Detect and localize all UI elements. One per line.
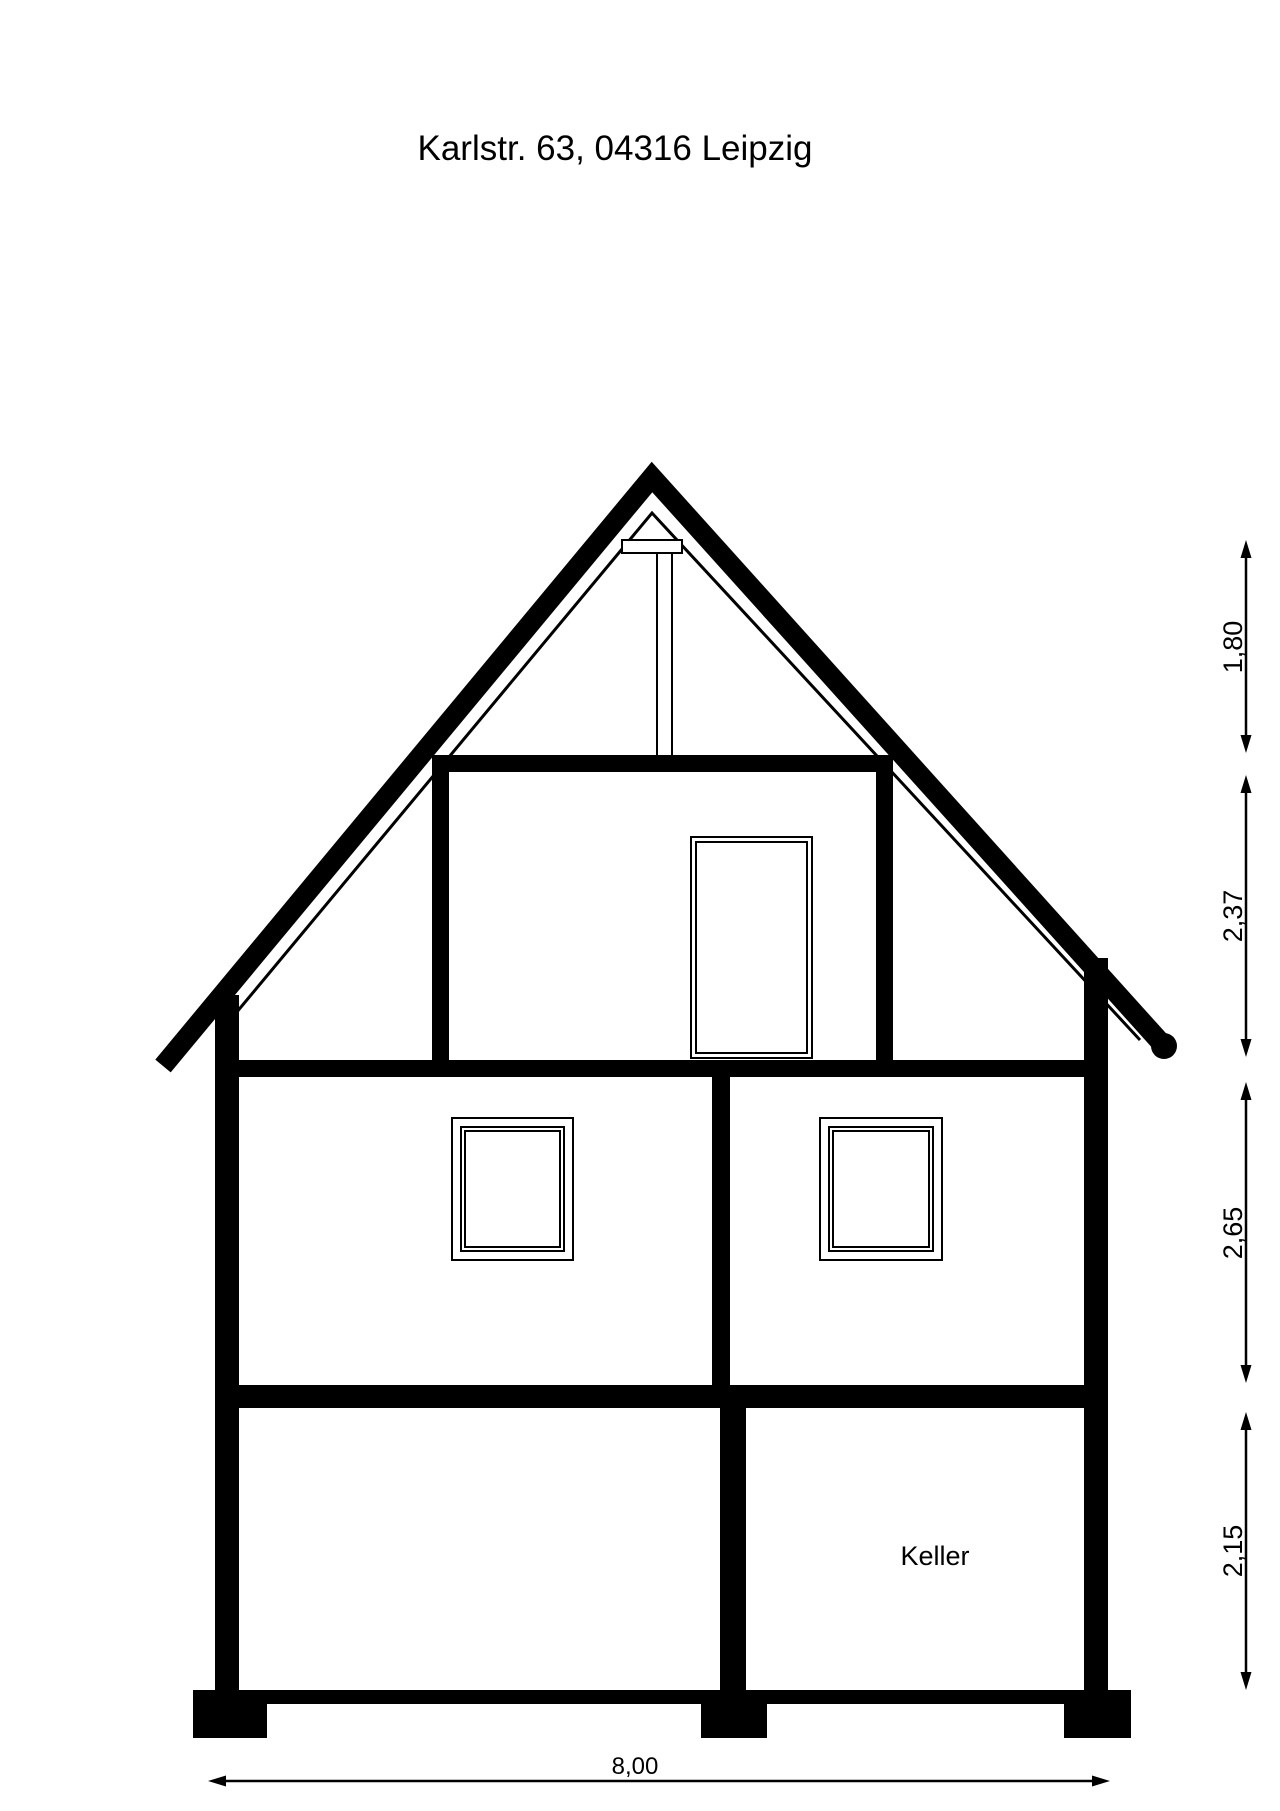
page-title: Karlstr. 63, 04316 Leipzig bbox=[418, 129, 813, 168]
dimension-label: 2,65 bbox=[1218, 1207, 1248, 1260]
window-upper-left bbox=[452, 1118, 573, 1260]
exterior-wall-left bbox=[215, 995, 239, 1690]
arrow-down-icon bbox=[1241, 735, 1252, 753]
arrow-up-icon bbox=[1241, 1082, 1252, 1100]
roof-eave-round-end bbox=[1151, 1033, 1177, 1059]
arrow-up-icon bbox=[1241, 775, 1252, 793]
arrow-down-icon bbox=[1241, 1672, 1252, 1690]
attic-wall-right bbox=[876, 772, 893, 1060]
ground-floor-slab bbox=[239, 1385, 1084, 1408]
arrow-down-icon bbox=[1241, 1039, 1252, 1057]
window-upper-right bbox=[820, 1118, 942, 1260]
attic-ceiling bbox=[432, 755, 893, 772]
dimension-label: 1,80 bbox=[1218, 621, 1248, 674]
exterior-wall-right bbox=[1084, 958, 1108, 1690]
attic-floor-slab bbox=[239, 1060, 1084, 1077]
section-drawing: Karlstr. 63, 04316 Leipzig Keller bbox=[0, 0, 1280, 1811]
arrow-left-icon bbox=[208, 1776, 226, 1787]
footing-left bbox=[193, 1690, 267, 1738]
arrow-up-icon bbox=[1241, 540, 1252, 558]
arrow-up-icon bbox=[1241, 1412, 1252, 1430]
dimension-bottom-width: 8,00 bbox=[208, 1753, 1110, 1787]
dimension-right-basement: 2,15 bbox=[1218, 1412, 1252, 1690]
collar-beam bbox=[622, 540, 682, 553]
king-post bbox=[657, 553, 672, 756]
dimension-right-upper-floor: 2,65 bbox=[1218, 1082, 1252, 1383]
attic-window bbox=[691, 837, 812, 1058]
interior-wall-upper bbox=[712, 1077, 730, 1385]
basement-room-label: Keller bbox=[900, 1541, 969, 1571]
footing-right bbox=[1064, 1690, 1131, 1738]
arrow-down-icon bbox=[1241, 1365, 1252, 1383]
attic-wall-left bbox=[432, 772, 449, 1060]
footing-middle bbox=[701, 1690, 767, 1738]
arrow-right-icon bbox=[1092, 1776, 1110, 1787]
dimension-right-attic: 2,37 bbox=[1218, 775, 1252, 1057]
roof-inner-line bbox=[236, 513, 1140, 1040]
dimension-right-roof: 1,80 bbox=[1218, 540, 1252, 753]
basement-slab bbox=[215, 1690, 1108, 1704]
interior-wall-basement bbox=[720, 1408, 746, 1690]
dimension-label: 2,15 bbox=[1218, 1525, 1248, 1578]
dimension-label: 2,37 bbox=[1218, 890, 1248, 943]
dimension-label: 8,00 bbox=[612, 1753, 659, 1780]
